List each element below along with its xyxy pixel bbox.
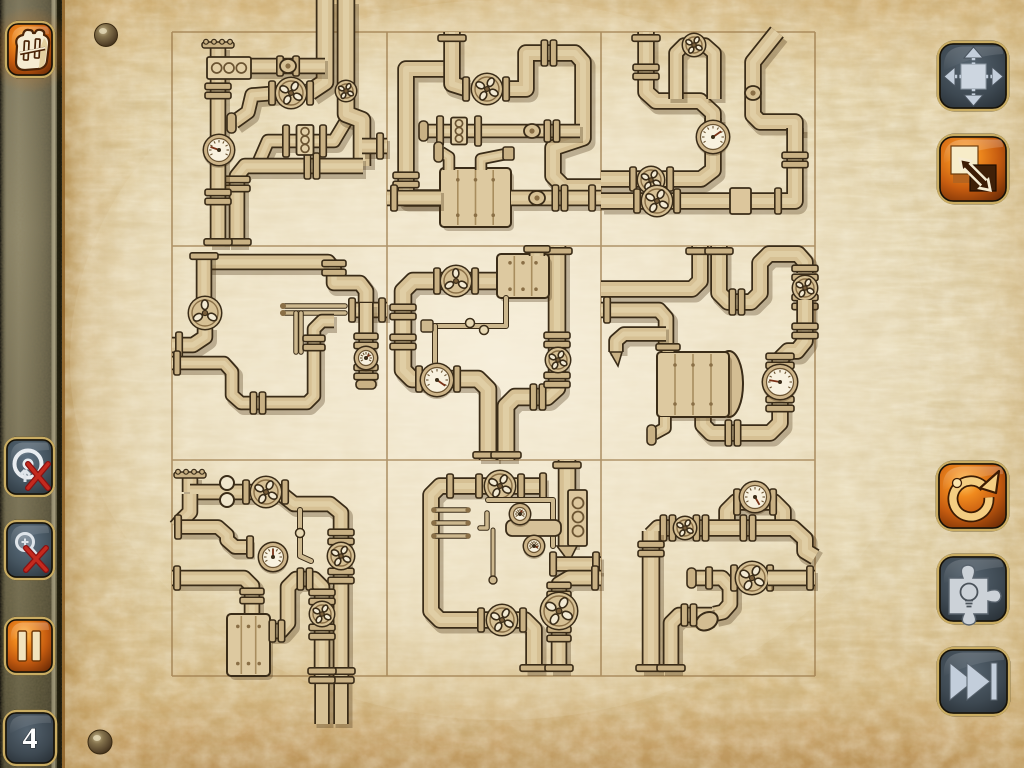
svg-text:4: 4 bbox=[23, 722, 38, 755]
